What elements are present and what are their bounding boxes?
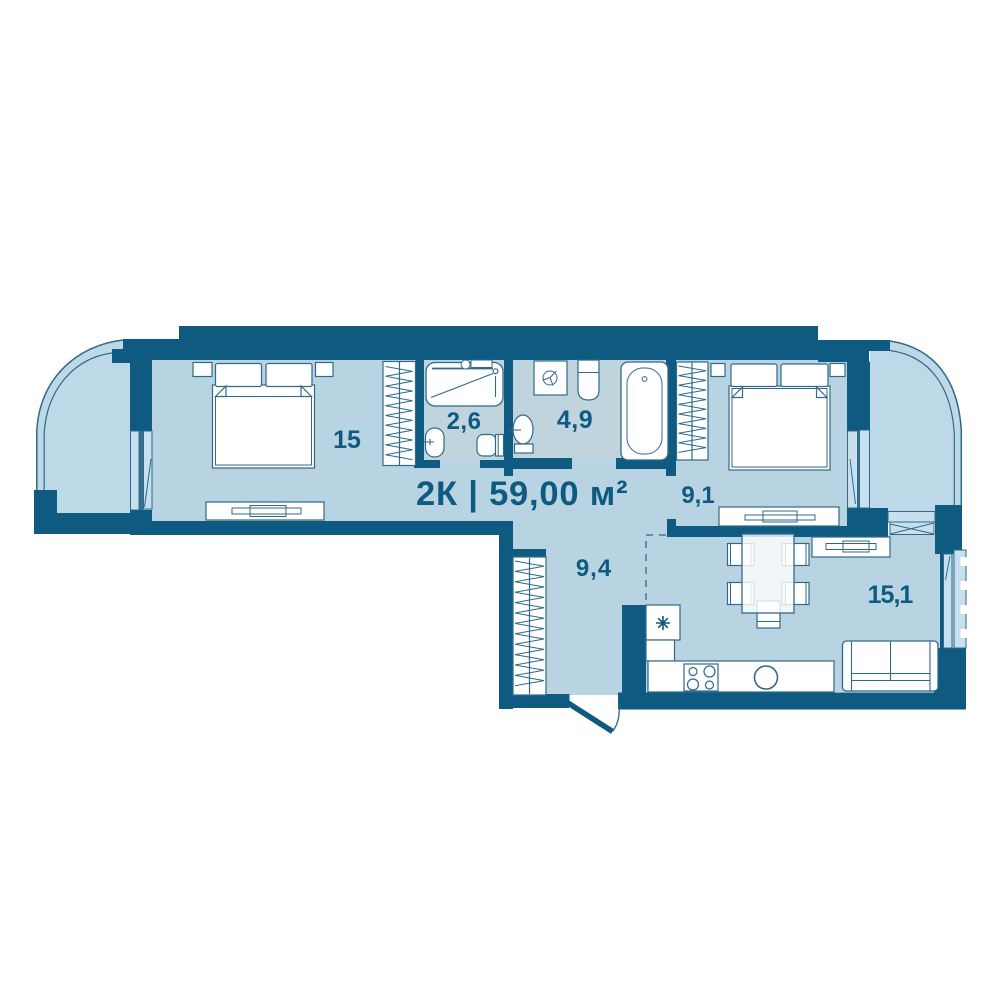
svg-text:15: 15 — [333, 426, 361, 454]
svg-text:15,1: 15,1 — [868, 581, 914, 609]
svg-text:9,1: 9,1 — [681, 482, 714, 509]
svg-text:9,4: 9,4 — [576, 555, 612, 582]
svg-text:2К | 59,00 м²: 2К | 59,00 м² — [416, 475, 628, 513]
svg-text:4,9: 4,9 — [557, 406, 593, 434]
svg-text:2,6: 2,6 — [447, 408, 482, 435]
